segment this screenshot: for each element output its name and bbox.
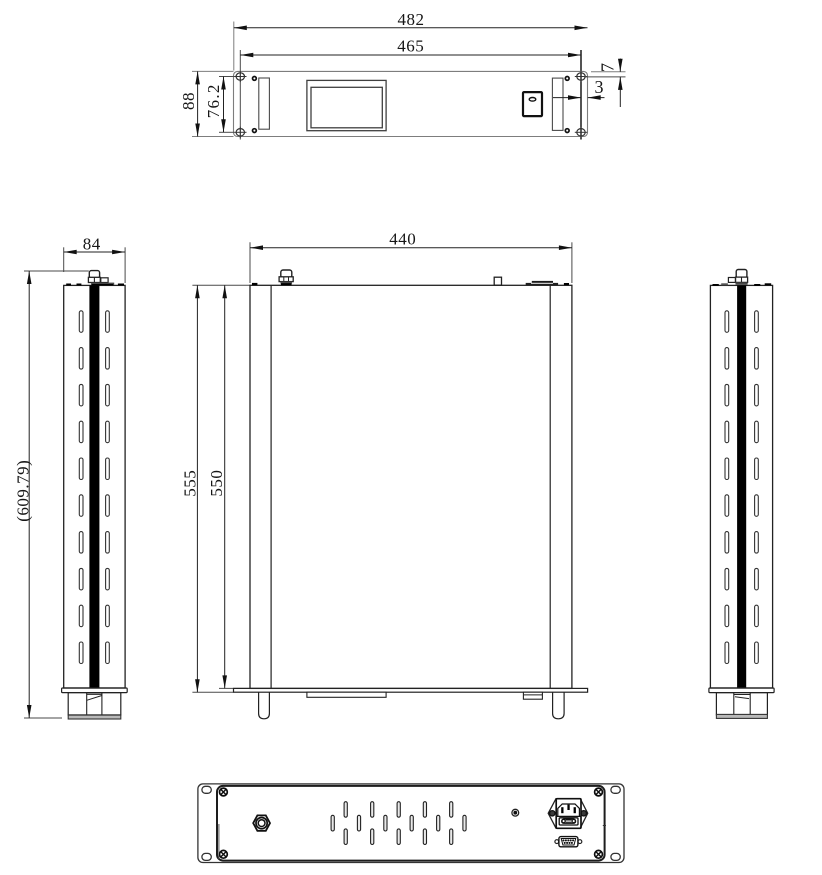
svg-text:7: 7 bbox=[598, 63, 618, 73]
svg-text:550: 550 bbox=[207, 470, 226, 497]
svg-text:88: 88 bbox=[179, 92, 198, 110]
svg-text:3: 3 bbox=[595, 77, 605, 97]
svg-text:440: 440 bbox=[389, 230, 416, 249]
svg-text:555: 555 bbox=[180, 470, 199, 497]
svg-text:482: 482 bbox=[398, 10, 425, 29]
svg-text:465: 465 bbox=[397, 37, 424, 56]
svg-text:(609.79): (609.79) bbox=[14, 460, 33, 522]
svg-text:84: 84 bbox=[83, 234, 101, 253]
svg-text:76.2: 76.2 bbox=[204, 83, 223, 118]
